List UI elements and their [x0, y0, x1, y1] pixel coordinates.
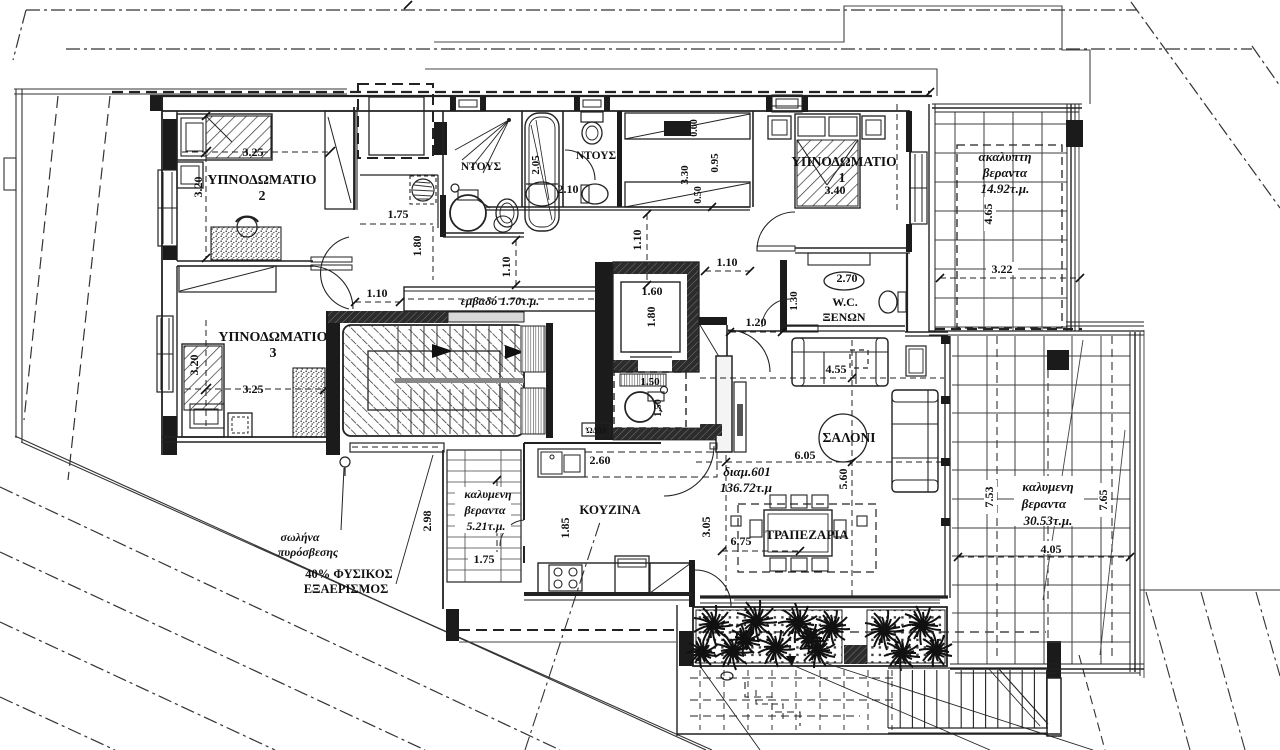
svg-text:διαμ.601: διαμ.601 [723, 464, 770, 479]
svg-text:0.60: 0.60 [689, 119, 700, 137]
svg-text:7.65: 7.65 [1096, 490, 1110, 511]
svg-text:6.05: 6.05 [795, 448, 816, 462]
svg-text:βεραντα: βεραντα [1021, 496, 1067, 511]
svg-text:3.05: 3.05 [699, 517, 713, 538]
svg-text:3.30: 3.30 [679, 165, 691, 185]
svg-text:2.10: 2.10 [558, 182, 579, 196]
svg-text:σωλήνα: σωλήνα [280, 530, 319, 544]
svg-text:3.20: 3.20 [187, 355, 201, 376]
svg-text:1.80: 1.80 [644, 307, 658, 328]
svg-text:6.75: 6.75 [731, 534, 752, 548]
svg-text:1.80: 1.80 [410, 236, 424, 257]
svg-text:ΞΕΝΩΝ: ΞΕΝΩΝ [822, 310, 865, 324]
svg-text:14.92τ.μ.: 14.92τ.μ. [981, 181, 1030, 196]
svg-text:W.C.: W.C. [832, 295, 858, 309]
svg-text:ΏΔ33: ΏΔ33 [585, 426, 605, 435]
svg-text:βεραντα: βεραντα [463, 503, 505, 517]
svg-text:3: 3 [270, 346, 277, 361]
svg-text:2.05: 2.05 [530, 155, 542, 175]
svg-text:1.10: 1.10 [717, 255, 738, 269]
svg-text:πυρόσβεσης: πυρόσβεσης [278, 545, 339, 559]
svg-text:3.20: 3.20 [191, 177, 205, 198]
svg-text:2.70: 2.70 [837, 271, 858, 285]
svg-text:ΕΞΑΕΡΙΣΜΟΣ: ΕΞΑΕΡΙΣΜΟΣ [304, 582, 389, 596]
svg-text:ΝΤΟΥΣ: ΝΤΟΥΣ [461, 161, 501, 173]
svg-text:1.10: 1.10 [367, 286, 388, 300]
svg-text:5.60: 5.60 [836, 469, 850, 490]
svg-text:3.22: 3.22 [992, 262, 1013, 276]
svg-text:3.40: 3.40 [825, 183, 846, 197]
svg-text:1.50: 1.50 [640, 376, 660, 388]
svg-text:ΥΠΝΟΔΩΜΑΤΙΟ: ΥΠΝΟΔΩΜΑΤΙΟ [218, 330, 327, 345]
svg-text:7.53: 7.53 [982, 487, 996, 508]
svg-text:2.60: 2.60 [590, 453, 611, 467]
svg-text:4.65: 4.65 [981, 204, 995, 225]
svg-text:βεραντα: βεραντα [982, 165, 1028, 180]
svg-text:1.75: 1.75 [474, 552, 495, 566]
svg-text:ΣΑΛΟΝΙ: ΣΑΛΟΝΙ [823, 430, 876, 445]
svg-text:καλυμενη: καλυμενη [1022, 479, 1073, 494]
svg-text:1.30: 1.30 [788, 291, 800, 311]
svg-text:ΤΡΑΠΕΖΑΡΙΑ: ΤΡΑΠΕΖΑΡΙΑ [765, 527, 849, 542]
svg-text:1.60: 1.60 [642, 284, 663, 298]
svg-text:ΥΠΝΟΔΩΜΑΤΙΟ: ΥΠΝΟΔΩΜΑΤΙΟ [791, 154, 896, 169]
svg-text:καλυμενη: καλυμενη [464, 487, 512, 501]
svg-text:ΥΠΝΟΔΩΜΑΤΙΟ: ΥΠΝΟΔΩΜΑΤΙΟ [207, 173, 316, 188]
svg-text:136.72τ.μ: 136.72τ.μ [720, 480, 772, 495]
svg-text:3.25: 3.25 [243, 382, 264, 396]
svg-text:ΚΟΥΖΙΝΑ: ΚΟΥΖΙΝΑ [579, 502, 641, 517]
svg-text:4.05: 4.05 [1041, 542, 1062, 556]
svg-text:εμβαδό 1.70τ.μ.: εμβαδό 1.70τ.μ. [461, 294, 540, 308]
svg-text:ΝΤΟΥΣ: ΝΤΟΥΣ [576, 150, 616, 162]
svg-text:0.50: 0.50 [693, 186, 704, 204]
svg-text:5.21τ.μ.: 5.21τ.μ. [467, 519, 506, 533]
svg-text:1.75: 1.75 [388, 207, 409, 221]
svg-text:1.10: 1.10 [630, 230, 644, 251]
svg-text:2.98: 2.98 [420, 511, 434, 532]
svg-text:1.10: 1.10 [499, 257, 513, 278]
svg-text:1.85: 1.85 [558, 518, 572, 539]
svg-text:30.53τ.μ.: 30.53τ.μ. [1023, 513, 1073, 528]
svg-text:ακαλυπτη: ακαλυπτη [979, 149, 1032, 164]
svg-text:0.95: 0.95 [709, 153, 721, 173]
svg-text:3.25: 3.25 [243, 145, 264, 159]
svg-text:1.50: 1.50 [653, 399, 664, 417]
svg-text:2: 2 [259, 189, 266, 204]
svg-text:40% ΦΥΣΙΚΟΣ: 40% ΦΥΣΙΚΟΣ [305, 567, 392, 581]
svg-text:4.55: 4.55 [826, 362, 847, 376]
